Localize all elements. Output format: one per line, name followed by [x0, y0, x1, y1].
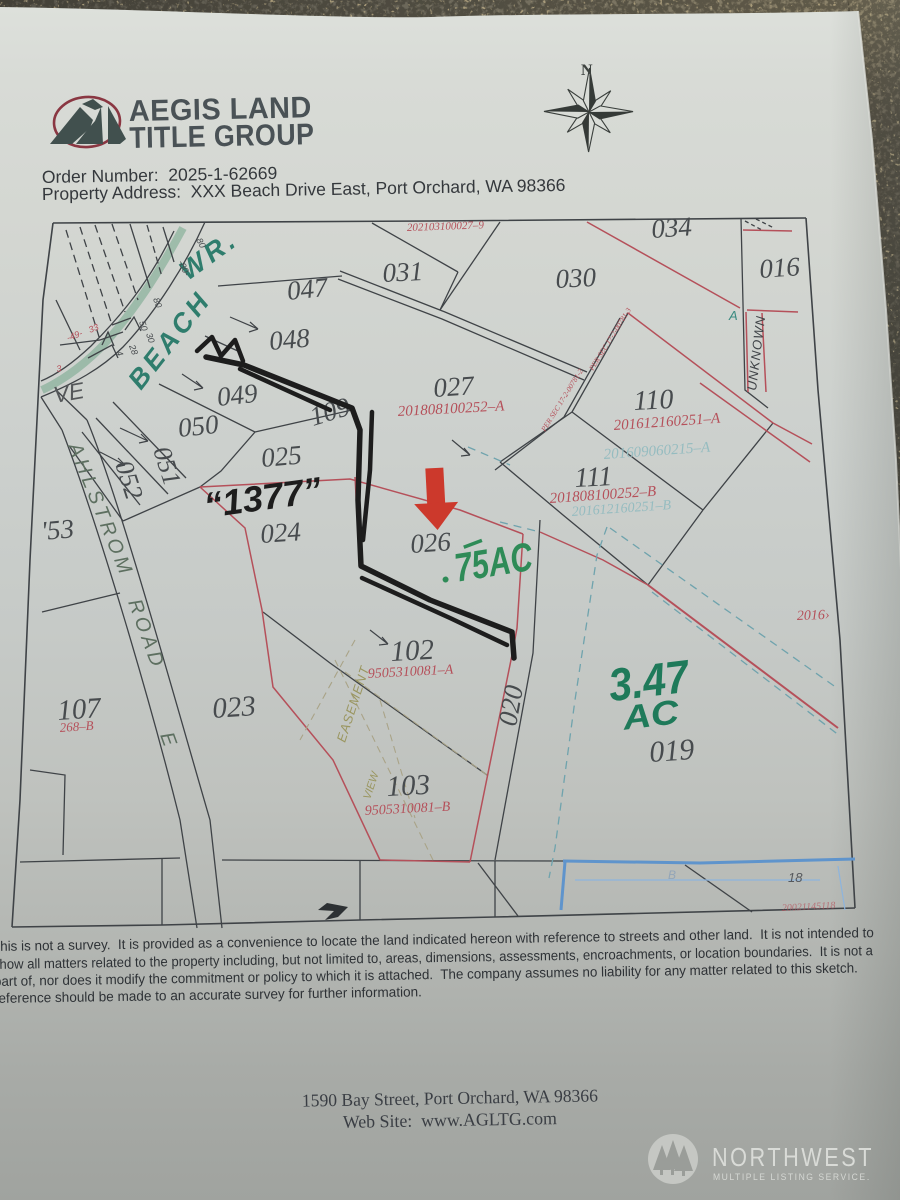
svg-text:N: N: [581, 62, 593, 79]
svg-text:030: 030: [555, 262, 598, 294]
svg-text:050: 050: [176, 409, 220, 443]
svg-text:ʹ53: ʹ53: [40, 513, 75, 546]
svg-text:047: 047: [285, 272, 330, 306]
svg-text:025: 025: [260, 440, 303, 473]
svg-text:023: 023: [211, 690, 257, 725]
svg-text:031: 031: [382, 256, 424, 288]
svg-text:103: 103: [386, 769, 431, 803]
svg-text:2016›: 2016›: [797, 608, 830, 624]
svg-text:B: B: [668, 868, 676, 882]
svg-text:NORTHWEST: NORTHWEST: [712, 1142, 874, 1172]
svg-text:18: 18: [788, 870, 803, 885]
svg-text:110: 110: [633, 384, 674, 417]
svg-text:AC: AC: [620, 693, 682, 738]
svg-text:Web Site: www.AGLTG.com: Web Site: www.AGLTG.com: [343, 1108, 557, 1132]
svg-text:019: 019: [648, 733, 695, 769]
svg-text:MULTIPLE LISTING SERVICE․: MULTIPLE LISTING SERVICE․: [713, 1172, 871, 1182]
svg-text:027: 027: [432, 370, 476, 403]
svg-text:016: 016: [758, 251, 801, 284]
svg-text:268–B: 268–B: [59, 718, 94, 735]
svg-text:TITLE GROUP: TITLE GROUP: [129, 118, 315, 155]
svg-text:049: 049: [215, 378, 259, 412]
svg-text:VE: VE: [51, 377, 86, 408]
svg-text:A: A: [728, 308, 738, 323]
svg-text:026: 026: [409, 526, 452, 559]
svg-text:034: 034: [650, 211, 692, 244]
svg-text:024: 024: [259, 516, 301, 549]
svg-text:048: 048: [268, 323, 311, 356]
